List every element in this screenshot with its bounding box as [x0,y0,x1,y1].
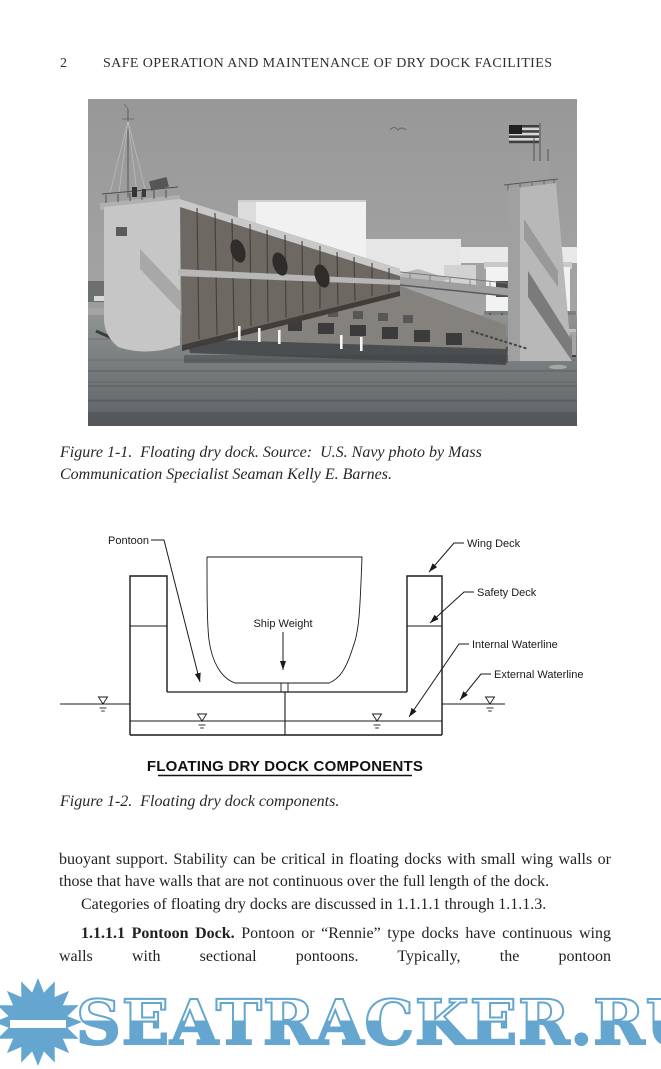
paragraph-categories: Categories of floating dry docks are dis… [59,894,611,916]
label-safety-deck: Safety Deck [477,587,537,599]
right-wing-wall-outline [407,576,442,735]
body-text: buoyant support. Stability can be critic… [59,849,611,968]
left-wing-wall-outline [130,576,167,735]
label-ship-weight: Ship Weight [253,618,312,630]
dry-dock-photo [88,99,577,426]
label-internal-waterline: Internal Waterline [472,639,558,651]
paragraph-pontoon-dock: 1.1.1.1 Pontoon Dock. Pontoon or “Rennie… [59,923,611,968]
label-wing-deck: Wing Deck [467,538,521,550]
running-header: 2 SAFE OPERATION AND MAINTENANCE OF DRY … [60,56,603,72]
figure-1-1-caption: Figure 1-1. Floating dry dock. Source: U… [60,442,580,486]
label-external-waterline: External Waterline [494,669,583,681]
figure-1-2-caption: Figure 1-2. Floating dry dock components… [60,791,580,813]
label-pontoon: Pontoon [108,535,149,547]
document-page: 2 SAFE OPERATION AND MAINTENANCE OF DRY … [0,0,661,1069]
paragraph-buoyant-support: buoyant support. Stability can be critic… [59,849,611,894]
leader-lines [151,540,491,717]
running-header-title: SAFE OPERATION AND MAINTENANCE OF DRY DO… [103,56,552,72]
watermark-text: SEATRACKER.RU [76,992,661,1054]
watermark: SEATRACKER.RU [0,968,661,1069]
diagram-title: FLOATING DRY DOCK COMPONENTS [147,758,423,775]
page-number: 2 [60,56,103,72]
figure-1-2-diagram: Pontoon Wing Deck Safety Deck Internal W… [58,520,618,786]
figure-1-1-photo [88,99,577,426]
sun-band [10,1020,66,1028]
section-heading-1-1-1-1: 1.1.1.1 Pontoon Dock. [81,925,235,942]
sun-icon [0,974,86,1069]
